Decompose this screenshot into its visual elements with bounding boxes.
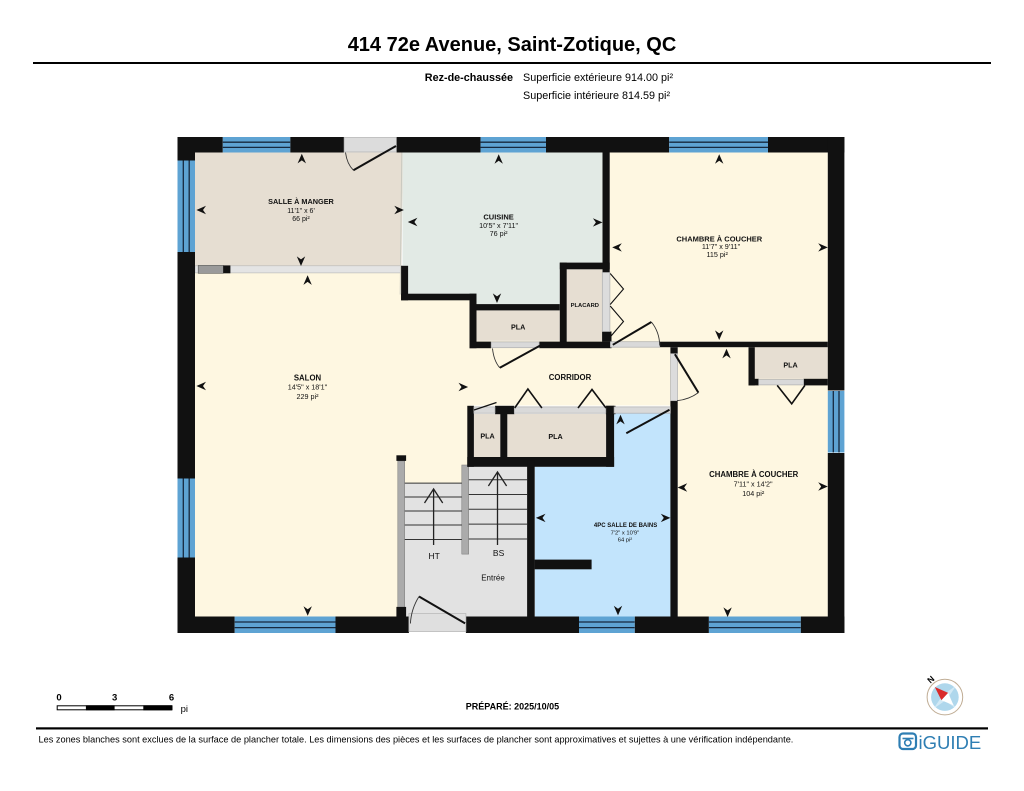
svg-text:BS: BS (493, 548, 505, 558)
svg-text:414 72e Avenue, Saint-Zotique,: 414 72e Avenue, Saint-Zotique, QC (348, 34, 677, 56)
svg-text:Superficie extérieure 914.00 p: Superficie extérieure 914.00 pi² (523, 72, 673, 84)
svg-text:pi: pi (181, 704, 188, 715)
svg-text:229 pi²: 229 pi² (297, 392, 320, 401)
svg-text:7'11" x 14'2": 7'11" x 14'2" (734, 480, 773, 489)
svg-text:Rez-de-chaussée: Rez-de-chaussée (425, 72, 513, 84)
svg-text:7'2" x 10'9": 7'2" x 10'9" (611, 531, 640, 537)
svg-text:PLA: PLA (511, 323, 525, 332)
svg-text:PLA: PLA (783, 361, 797, 370)
svg-text:HT: HT (429, 551, 440, 561)
svg-text:11'1" x 6': 11'1" x 6' (287, 208, 315, 215)
svg-text:104 pi²: 104 pi² (742, 489, 765, 498)
svg-text:PLACARD: PLACARD (571, 303, 599, 309)
svg-text:iGUIDE: iGUIDE (919, 732, 982, 753)
svg-text:Entrée: Entrée (481, 574, 505, 583)
svg-text:66 pi²: 66 pi² (292, 216, 310, 223)
svg-text:Les zones blanches sont exclue: Les zones blanches sont exclues de la su… (39, 735, 794, 745)
svg-text:CORRIDOR: CORRIDOR (549, 373, 592, 382)
svg-text:Superficie intérieure 814.59 p: Superficie intérieure 814.59 pi² (523, 90, 670, 102)
svg-text:115 pi²: 115 pi² (706, 250, 728, 259)
svg-text:SALON: SALON (294, 374, 322, 383)
svg-text:SALLE À MANGER: SALLE À MANGER (268, 197, 334, 206)
svg-text:64 pi²: 64 pi² (618, 538, 633, 544)
svg-text:PLA: PLA (480, 431, 494, 440)
svg-text:14'5" x 18'1": 14'5" x 18'1" (288, 383, 328, 392)
svg-text:6: 6 (169, 693, 174, 704)
svg-text:4PC SALLE DE BAINS: 4PC SALLE DE BAINS (594, 523, 657, 529)
svg-text:76 pi²: 76 pi² (490, 229, 509, 238)
svg-text:CHAMBRE À COUCHER: CHAMBRE À COUCHER (709, 470, 799, 479)
svg-text:PRÉPARÉ: 2025/10/05: PRÉPARÉ: 2025/10/05 (466, 702, 559, 712)
svg-text:3: 3 (112, 693, 117, 704)
svg-text:0: 0 (56, 693, 61, 704)
svg-text:PLA: PLA (548, 432, 562, 441)
